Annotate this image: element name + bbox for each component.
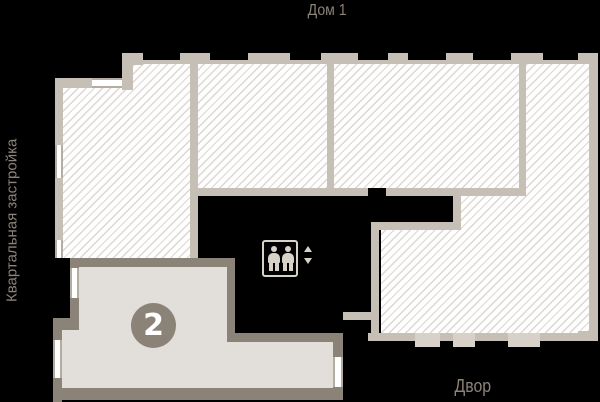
apartment-top-right — [334, 63, 519, 188]
arrow-down-icon — [304, 258, 312, 264]
window — [55, 145, 63, 178]
wall-segment — [55, 86, 63, 145]
window — [55, 240, 63, 258]
unit-number: 2 — [143, 308, 164, 343]
wall-segment — [519, 60, 526, 190]
wall-segment — [368, 333, 598, 341]
facade-pier — [511, 53, 543, 64]
wall-segment — [122, 60, 133, 90]
window — [508, 333, 540, 347]
wall-segment — [343, 312, 379, 320]
floor-plan: 2 Дом 1 Квартальная застройка Двор — [0, 0, 600, 402]
window — [415, 333, 440, 347]
window — [70, 268, 79, 298]
apartment-top-left — [63, 63, 192, 258]
unit-2-area[interactable] — [62, 267, 333, 388]
wall-segment — [192, 188, 526, 196]
window — [92, 78, 122, 88]
unit-2-wall — [70, 258, 235, 267]
arrow-up-icon — [304, 246, 312, 252]
door-opening — [368, 188, 386, 196]
person-icon — [282, 246, 294, 271]
wall-segment — [55, 178, 63, 240]
window — [53, 340, 62, 378]
wall-segment — [371, 222, 461, 230]
elevator-icon — [260, 238, 318, 280]
facade-pier — [446, 53, 473, 64]
unit-2-wall — [227, 333, 343, 342]
facade-pier — [248, 53, 290, 64]
label-house: Дом 1 — [247, 1, 407, 21]
label-yard: Двор — [408, 373, 538, 399]
unit-2-badge[interactable]: 2 — [131, 303, 176, 348]
window — [333, 357, 343, 387]
label-district: Квартальная застройка — [0, 90, 24, 350]
window — [453, 333, 475, 347]
person-icon — [268, 246, 280, 271]
apartment-top-middle — [198, 63, 327, 188]
wall-segment — [327, 60, 334, 193]
unit-2-wall — [227, 258, 235, 342]
wall-segment — [371, 230, 379, 341]
wall-segment — [190, 60, 198, 266]
unit-2-wall — [53, 388, 343, 400]
wall-segment — [589, 57, 598, 341]
facade-pier — [388, 53, 408, 64]
